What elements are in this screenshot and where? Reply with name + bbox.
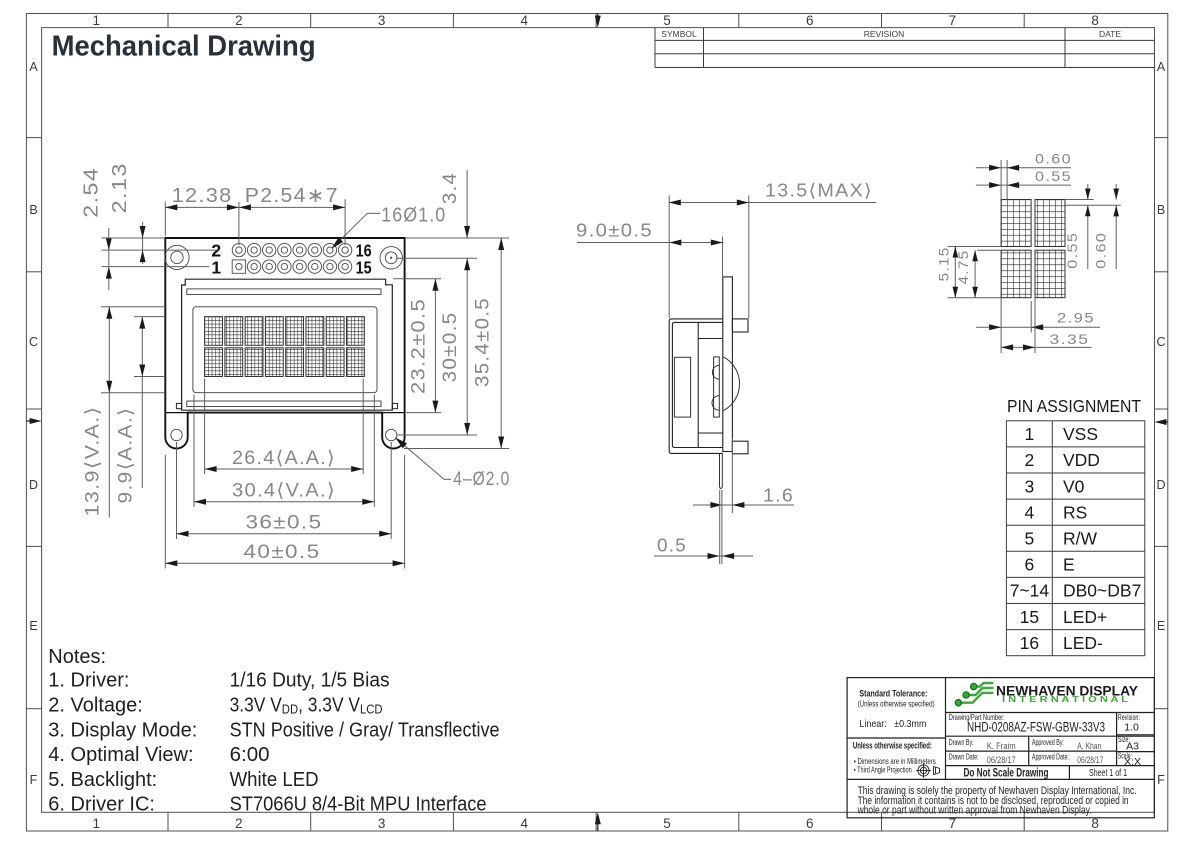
svg-text:Notes:: Notes: xyxy=(48,646,106,668)
svg-text:Sheet 1 of 1: Sheet 1 of 1 xyxy=(1089,768,1127,779)
svg-text:13.5⟨MAX⟩: 13.5⟨MAX⟩ xyxy=(765,180,873,200)
svg-text:12.38: 12.38 xyxy=(172,185,233,207)
svg-text:2: 2 xyxy=(235,816,243,831)
svg-text:7~14: 7~14 xyxy=(1010,581,1050,601)
svg-text:E: E xyxy=(1063,555,1075,575)
svg-text:F: F xyxy=(30,773,38,787)
svg-text:V0: V0 xyxy=(1063,476,1085,496)
svg-text:Drawn Date:: Drawn Date: xyxy=(949,752,979,762)
svg-text:• Third Angle Projection: • Third Angle Projection xyxy=(854,765,912,775)
svg-text:4: 4 xyxy=(521,13,529,28)
svg-text:DATE: DATE xyxy=(1099,29,1121,39)
svg-text:2: 2 xyxy=(235,13,243,28)
svg-text:VSS: VSS xyxy=(1063,424,1098,444)
svg-text:6. Driver IC:: 6. Driver IC: xyxy=(48,794,155,816)
svg-text:3.3V VDD, 3.3V VLCD: 3.3V VDD, 3.3V VLCD xyxy=(230,695,383,717)
svg-text:9.9⟨A.A.⟩: 9.9⟨A.A.⟩ xyxy=(116,407,137,504)
svg-text:1. Driver:: 1. Driver: xyxy=(48,670,129,692)
svg-text:3. Display Mode:: 3. Display Mode: xyxy=(48,719,197,741)
svg-text:A: A xyxy=(1157,60,1166,74)
svg-text:1/16 Duty, 1/5 Bias: 1/16 Duty, 1/5 Bias xyxy=(230,670,390,692)
svg-text:6: 6 xyxy=(1025,555,1035,575)
svg-text:1: 1 xyxy=(92,13,100,28)
svg-text:REVISION: REVISION xyxy=(864,29,905,39)
svg-text:LED-: LED- xyxy=(1063,633,1103,653)
svg-text:ST7066U 8/4-Bit MPU Interface: ST7066U 8/4-Bit MPU Interface xyxy=(230,794,487,816)
svg-text:16: 16 xyxy=(1020,633,1039,653)
svg-text:E: E xyxy=(1157,619,1165,633)
svg-text:whole or part without written: whole or part without written approval f… xyxy=(857,804,1092,816)
svg-text:1: 1 xyxy=(92,816,100,831)
svg-text:A. Khan: A. Khan xyxy=(1077,741,1101,752)
svg-text:Mechanical Drawing: Mechanical Drawing xyxy=(52,31,316,63)
svg-text:4. Optimal View:: 4. Optimal View: xyxy=(48,744,193,766)
svg-text:30.4⟨V.A.⟩: 30.4⟨V.A.⟩ xyxy=(232,481,336,502)
svg-text:06/28/17: 06/28/17 xyxy=(1077,755,1103,766)
svg-text:0.5: 0.5 xyxy=(657,536,687,556)
svg-text:23.2±0.5: 23.2±0.5 xyxy=(408,298,429,394)
svg-text:2.13: 2.13 xyxy=(109,162,131,213)
svg-text:4.75: 4.75 xyxy=(955,250,971,285)
svg-text:D: D xyxy=(1156,478,1165,492)
svg-text:B: B xyxy=(1157,203,1165,217)
svg-text:5: 5 xyxy=(663,816,671,831)
svg-text:2. Voltage:: 2. Voltage: xyxy=(48,695,143,717)
svg-text:RS: RS xyxy=(1063,502,1087,522)
svg-text:(Unless otherwise specified): (Unless otherwise specified) xyxy=(858,699,935,709)
svg-text:3: 3 xyxy=(378,13,386,28)
svg-text:2: 2 xyxy=(1025,450,1035,470)
svg-text:2.95: 2.95 xyxy=(1057,310,1095,326)
svg-text:R/W: R/W xyxy=(1063,529,1098,549)
svg-text:VDD: VDD xyxy=(1063,450,1100,470)
svg-text:K. Fraim: K. Fraim xyxy=(987,741,1016,752)
svg-text:C: C xyxy=(29,335,38,349)
svg-text:0.55: 0.55 xyxy=(1035,168,1072,184)
svg-text:4: 4 xyxy=(521,816,529,831)
svg-text:6: 6 xyxy=(806,13,814,28)
svg-text:C: C xyxy=(1156,335,1165,349)
svg-text:1: 1 xyxy=(1025,424,1035,444)
svg-text:SYMBOL: SYMBOL xyxy=(661,29,697,39)
svg-text:1: 1 xyxy=(211,257,221,277)
svg-text:I N T E R N A T I O N A L: I N T E R N A T I O N A L xyxy=(1002,695,1128,704)
svg-text:1.6: 1.6 xyxy=(763,485,794,505)
svg-text:Unless otherwise specified:: Unless otherwise specified: xyxy=(853,741,932,751)
svg-text:35.4±0.5: 35.4±0.5 xyxy=(473,297,494,387)
svg-text:Drawn By:: Drawn By: xyxy=(949,737,974,747)
svg-text:Approved Date:: Approved Date: xyxy=(1032,752,1069,762)
svg-text:0.60: 0.60 xyxy=(1035,151,1072,167)
svg-text:5: 5 xyxy=(663,13,671,28)
svg-text:8: 8 xyxy=(1091,13,1099,28)
svg-text:5.15: 5.15 xyxy=(935,246,951,281)
svg-text:16Ø1.0: 16Ø1.0 xyxy=(381,205,446,227)
svg-text:7: 7 xyxy=(949,13,957,28)
svg-text:X:X: X:X xyxy=(1124,756,1141,768)
svg-text:5: 5 xyxy=(1025,529,1035,549)
svg-text:4–Ø2.0: 4–Ø2.0 xyxy=(453,469,510,490)
svg-text:P2.54∗7: P2.54∗7 xyxy=(245,185,339,207)
svg-text:40±0.5: 40±0.5 xyxy=(244,542,321,563)
svg-text:6: 6 xyxy=(806,816,814,831)
svg-text:9.0±0.5: 9.0±0.5 xyxy=(576,220,653,240)
svg-text:D: D xyxy=(29,478,38,492)
svg-text:E: E xyxy=(29,619,37,633)
svg-text:3: 3 xyxy=(378,816,386,831)
svg-text:A: A xyxy=(29,60,38,74)
svg-text:STN Positive / Gray/ Transflec: STN Positive / Gray/ Transflective xyxy=(230,719,500,741)
svg-text:5. Backlight:: 5. Backlight: xyxy=(48,769,157,791)
svg-text:B: B xyxy=(29,203,37,217)
svg-text:6:00: 6:00 xyxy=(230,744,270,766)
svg-text:36±0.5: 36±0.5 xyxy=(246,512,323,533)
svg-text:DB0~DB7: DB0~DB7 xyxy=(1063,581,1141,601)
svg-text:NHD-0208AZ-FSW-GBW-33V3: NHD-0208AZ-FSW-GBW-33V3 xyxy=(967,720,1105,735)
svg-text:Linear: ±0.3mm: Linear: ±0.3mm xyxy=(859,718,926,730)
svg-text:26.4⟨A.A.⟩: 26.4⟨A.A.⟩ xyxy=(232,448,336,469)
svg-text:LED+: LED+ xyxy=(1063,607,1107,627)
svg-text:15: 15 xyxy=(356,257,372,277)
svg-text:Do Not Scale Drawing: Do Not Scale Drawing xyxy=(964,766,1049,780)
svg-text:4: 4 xyxy=(1025,502,1035,522)
svg-text:0.55: 0.55 xyxy=(1064,232,1080,269)
svg-text:1.0: 1.0 xyxy=(1124,722,1139,734)
svg-text:13.9⟨V.A.⟩: 13.9⟨V.A.⟩ xyxy=(83,406,104,517)
svg-text:0.60: 0.60 xyxy=(1093,232,1109,269)
svg-text:3.35: 3.35 xyxy=(1050,331,1090,347)
svg-text:30±0.5: 30±0.5 xyxy=(440,312,461,383)
svg-text:3: 3 xyxy=(1025,476,1035,496)
svg-text:Approved By:: Approved By: xyxy=(1032,737,1064,747)
svg-text:F: F xyxy=(1157,773,1165,787)
svg-text:3.4: 3.4 xyxy=(440,172,461,204)
svg-text:White LED: White LED xyxy=(230,769,319,791)
svg-text:PIN ASSIGNMENT: PIN ASSIGNMENT xyxy=(1007,396,1141,416)
svg-text:15: 15 xyxy=(1020,607,1039,627)
svg-text:2.54: 2.54 xyxy=(81,167,103,218)
